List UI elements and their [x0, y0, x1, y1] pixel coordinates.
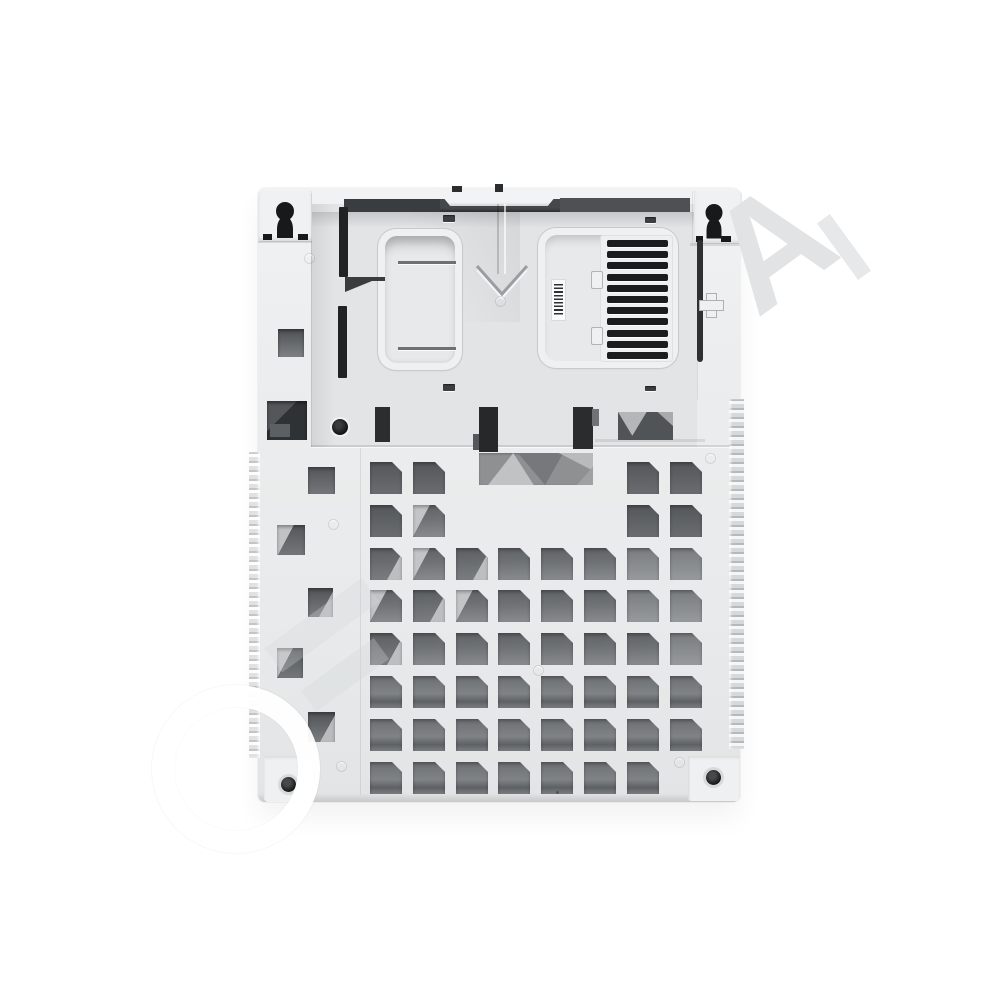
grid-hole	[627, 548, 659, 580]
surface-dimple	[705, 453, 716, 464]
clip-slot	[443, 215, 455, 222]
surface-dimple	[674, 757, 685, 768]
clip-slot	[645, 217, 656, 223]
flange-hole	[308, 712, 335, 742]
grid-hole	[584, 548, 616, 580]
grid-hole	[584, 590, 616, 622]
grid-hole	[413, 590, 445, 622]
flange-hole	[277, 648, 303, 678]
grid-hole	[584, 676, 616, 708]
grid-hole	[456, 590, 488, 622]
grid-hole	[670, 590, 702, 622]
grid-hole	[413, 719, 445, 751]
grid-hole	[541, 676, 573, 708]
grid-hole	[456, 548, 488, 580]
grid-hole	[670, 676, 702, 708]
flange-hole	[308, 467, 335, 494]
grid-hole	[627, 719, 659, 751]
grid-hole	[456, 676, 488, 708]
grid-hole	[541, 633, 573, 665]
flange-hole	[277, 525, 305, 555]
clip-slot	[443, 384, 455, 391]
grid-hole	[413, 762, 445, 794]
grid-hole	[370, 762, 402, 794]
grid-hole	[584, 633, 616, 665]
grid-hole	[670, 548, 702, 580]
grid-hole	[670, 633, 702, 665]
grid-hole	[670, 719, 702, 751]
foot-pad-left	[264, 756, 313, 802]
flange-hole	[308, 588, 333, 617]
grid-hole	[370, 719, 402, 751]
grid-hole	[498, 719, 530, 751]
surface-speck	[556, 791, 559, 794]
grid-hole	[370, 462, 402, 494]
screw-hole	[706, 770, 721, 785]
grid-hole	[413, 505, 445, 537]
grid-hole	[627, 762, 659, 794]
screw-hole	[281, 777, 296, 792]
grid-hole	[413, 633, 445, 665]
grid-hole	[498, 762, 530, 794]
grid-hole	[370, 548, 402, 580]
grid-hole	[627, 633, 659, 665]
grid-hole	[370, 633, 402, 665]
grid-hole	[456, 633, 488, 665]
grid-hole	[541, 719, 573, 751]
grid-hole	[541, 762, 573, 794]
grid-hole	[498, 590, 530, 622]
grid-hole	[627, 590, 659, 622]
grid-hole	[670, 462, 702, 494]
grid-hole	[370, 676, 402, 708]
surface-dimple	[304, 253, 315, 264]
surface-dimple	[533, 665, 544, 676]
grid-hole	[370, 590, 402, 622]
grid-hole	[456, 762, 488, 794]
hole-grid	[0, 0, 1000, 1000]
foot-pad-right	[688, 756, 740, 801]
grid-hole	[413, 548, 445, 580]
clip-slot	[645, 386, 656, 391]
photo-stage: A	[0, 0, 1000, 1000]
grid-hole	[370, 505, 402, 537]
grid-hole	[584, 719, 616, 751]
grid-hole	[498, 633, 530, 665]
grid-hole	[498, 548, 530, 580]
grid-hole	[670, 505, 702, 537]
grid-hole	[456, 719, 488, 751]
surface-dimple	[328, 519, 339, 530]
grid-hole	[627, 462, 659, 494]
grid-hole	[627, 505, 659, 537]
grid-hole	[627, 676, 659, 708]
surface-dimple	[495, 296, 506, 307]
grid-hole	[541, 590, 573, 622]
grid-hole	[498, 676, 530, 708]
grid-hole	[584, 762, 616, 794]
grid-hole	[413, 462, 445, 494]
surface-dimple	[336, 761, 347, 772]
grid-hole	[541, 548, 573, 580]
grid-hole	[413, 676, 445, 708]
